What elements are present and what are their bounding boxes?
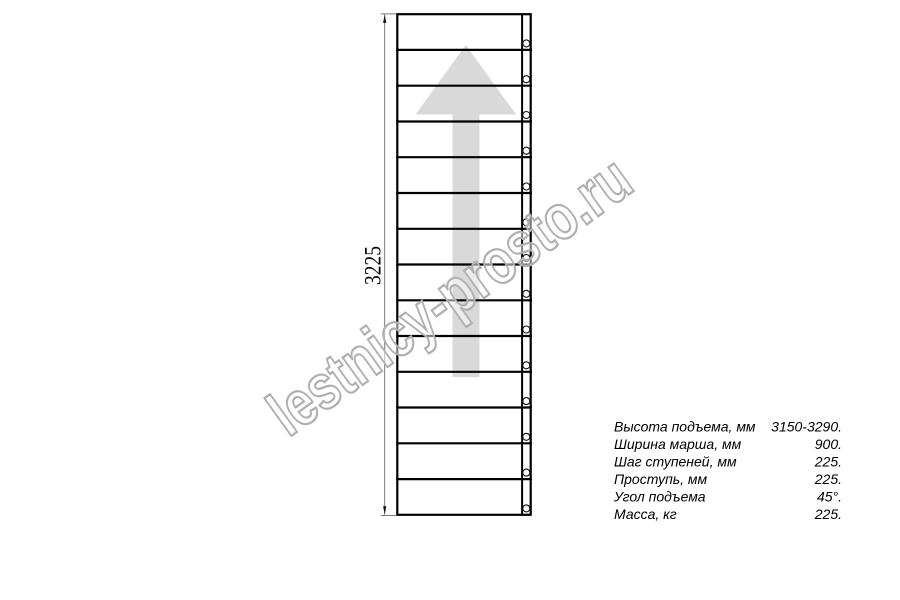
svg-text:Шаг ступеней, мм: Шаг ступеней, мм bbox=[614, 454, 737, 470]
svg-text:Ширина марша, мм: Ширина марша, мм bbox=[614, 436, 742, 452]
svg-text:Масса, кг: Масса, кг bbox=[614, 506, 677, 522]
svg-text:3150-3290.: 3150-3290. bbox=[771, 419, 842, 435]
svg-text:225.: 225. bbox=[814, 471, 842, 487]
svg-text:Проступь, мм: Проступь, мм bbox=[614, 471, 708, 487]
svg-text:225.: 225. bbox=[814, 506, 842, 522]
svg-text:45°.: 45°. bbox=[817, 489, 842, 505]
svg-text:Высота подъема, мм: Высота подъема, мм bbox=[614, 419, 756, 435]
svg-text:900.: 900. bbox=[815, 436, 842, 452]
svg-text:225.: 225. bbox=[814, 454, 842, 470]
svg-text:3225: 3225 bbox=[360, 246, 385, 285]
svg-text:lestnicy-prosto.ru: lestnicy-prosto.ru bbox=[255, 142, 645, 450]
svg-text:Угол подъема: Угол подъема bbox=[613, 489, 706, 505]
